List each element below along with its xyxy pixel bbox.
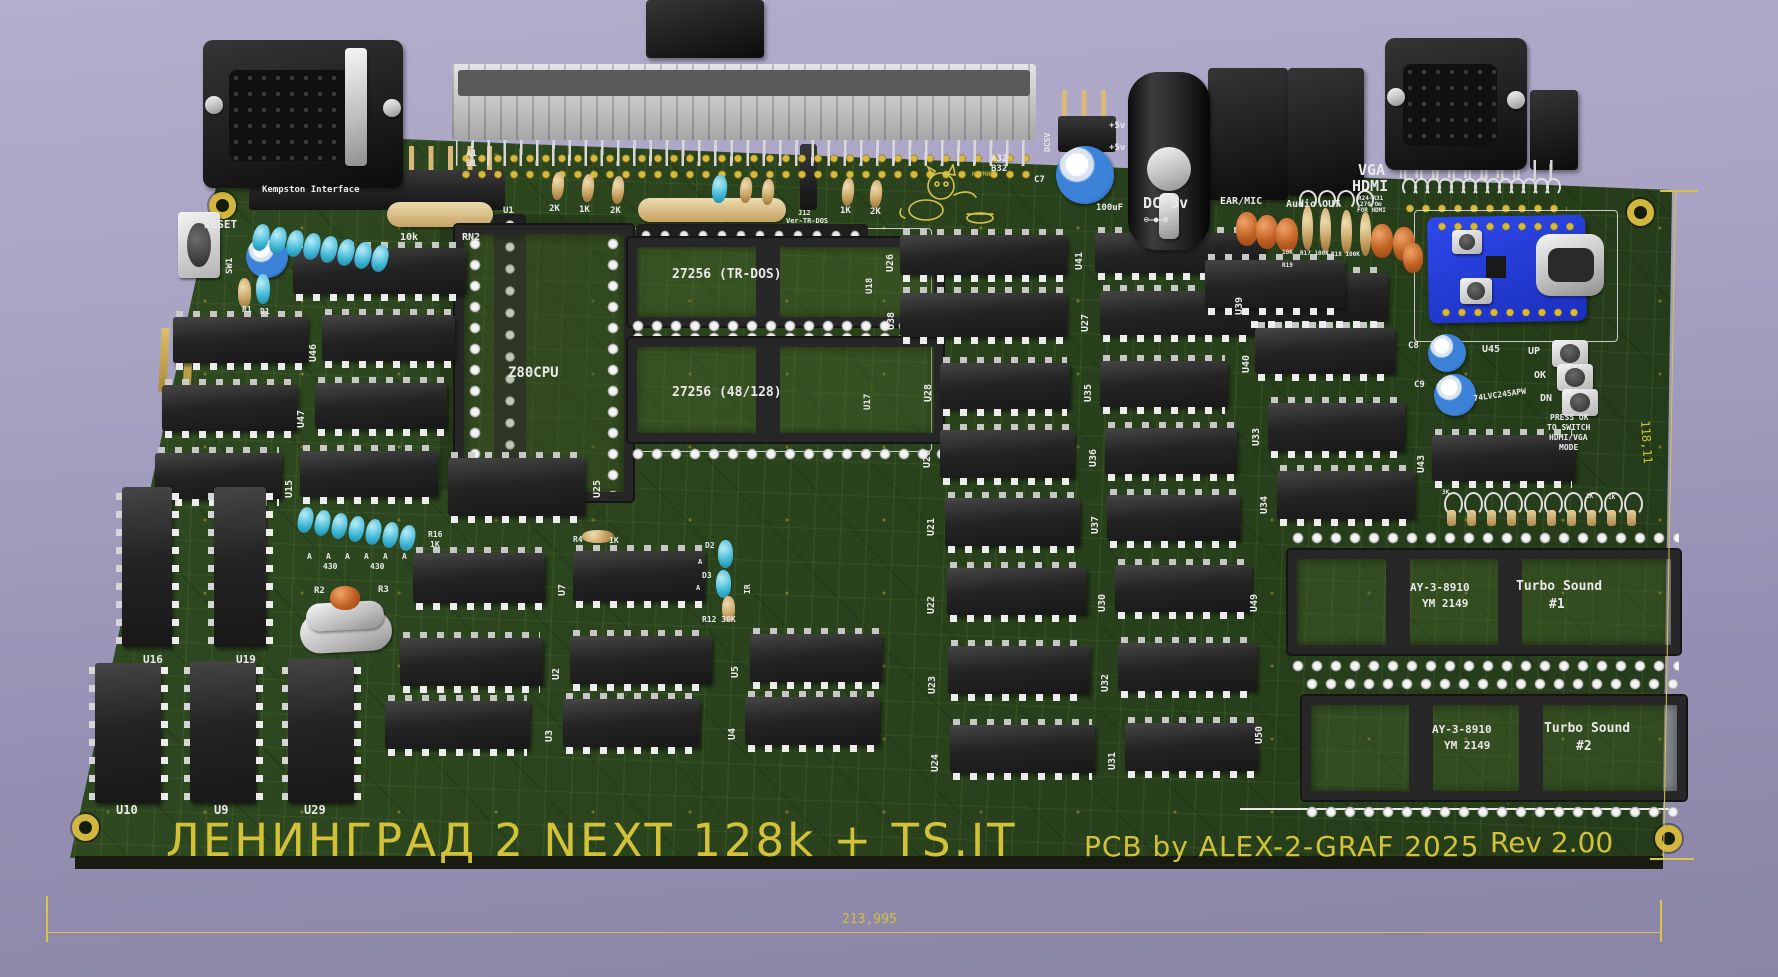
chip-pins (1118, 559, 1249, 565)
silk-label: U25 (593, 480, 603, 498)
ic-chip (900, 235, 1067, 275)
silk-label: UP (1528, 347, 1540, 357)
dim-part (1660, 900, 1662, 942)
silk-label: 2K (549, 205, 560, 214)
silk-label: R2 (314, 587, 325, 596)
chip-pins (1271, 397, 1402, 403)
dim-part (1660, 190, 1698, 192)
mounting-hole (1655, 825, 1682, 852)
bead-component (1371, 224, 1393, 258)
silk-label: D2 (705, 542, 715, 550)
ic-chip (900, 293, 1067, 337)
silk-label: AY-3-8910 (1410, 582, 1470, 593)
silk-label: R19 (1282, 263, 1293, 269)
silk-label: RN2 (462, 233, 480, 243)
silk-label: U50 (1255, 726, 1265, 744)
silk-label: +5v (1109, 144, 1125, 153)
ic-chip (315, 383, 447, 429)
silk-label: U26 (886, 254, 896, 272)
silk-label: 1K (1608, 495, 1615, 501)
chip-pins (303, 497, 435, 504)
silk-label: U34 (1260, 496, 1270, 514)
silk-label: +5v (1109, 122, 1125, 131)
chip-pins (176, 363, 305, 370)
silk-label: 1K (840, 207, 851, 216)
dc-barrel-jack (1128, 72, 1210, 250)
silk-label: YM 2149 (1444, 740, 1490, 751)
pcb-3d-render: Kempston InterfaceRESETSW1R1D110kRN2U1A1… (0, 0, 1778, 977)
dip-socket (1302, 696, 1686, 800)
chip-pins (1110, 489, 1237, 495)
board-credit-silkscreen: PCB by ALEX-2-GRAF 2025 (1084, 830, 1480, 863)
silk-label: IR (744, 584, 752, 594)
silk-label: 1K (1586, 494, 1593, 500)
ic-chip (1118, 643, 1257, 691)
chip-pins (318, 377, 444, 383)
ic-chip (448, 458, 585, 516)
usb-c-slot (1548, 248, 1594, 282)
silk-label: D3 (702, 572, 712, 580)
silk-label: 1K (430, 541, 440, 549)
ic-chip (948, 646, 1090, 694)
dsub-face (1403, 64, 1497, 146)
button-plunger (1570, 393, 1590, 411)
silk-label: U30 (1098, 594, 1108, 612)
chip-pins (165, 431, 295, 438)
chip-pins (943, 478, 1072, 485)
bead-component (1360, 212, 1371, 256)
ic-chip (570, 636, 712, 684)
chip-pins (388, 749, 527, 756)
chip-pins (89, 666, 95, 800)
silk-label: U38 (887, 312, 897, 330)
silk-label: A (326, 553, 331, 561)
dimension-line (46, 932, 1662, 933)
bead-component (256, 274, 270, 304)
silk-label: 1K (579, 206, 590, 215)
loop-body (1447, 510, 1456, 526)
silk-label: Kempston Interface (262, 186, 360, 195)
bead-component (330, 586, 360, 610)
chip-pins (1258, 322, 1392, 328)
silk-label: R12 30K (702, 616, 736, 624)
silk-label: AY-3-8910 (1432, 724, 1492, 735)
silk-label: A (696, 585, 700, 592)
ic-chip (1107, 495, 1240, 541)
dimension-height-label: 118,11 (1638, 420, 1655, 464)
button-plunger (1565, 368, 1585, 386)
bead-component (1302, 206, 1313, 250)
chip-pins (403, 686, 540, 693)
silk-label: U1 (503, 207, 514, 216)
bead-component (1320, 208, 1331, 252)
ic-chip (322, 315, 455, 361)
silk-label: КОРМИТЬ (972, 172, 997, 178)
chip-pins (296, 294, 463, 301)
chip-pins (318, 429, 444, 436)
wire-loop (1546, 178, 1561, 196)
loop-body (1507, 510, 1516, 526)
bead-component (1256, 215, 1278, 249)
silk-label: R17 100K (1300, 251, 1329, 257)
chip-pins (953, 773, 1092, 780)
silk-label: R3 (378, 586, 389, 595)
chip-pins (943, 357, 1067, 363)
chip-pins (1435, 481, 1572, 488)
dsub-bracket (345, 48, 367, 166)
silk-label: U15 (285, 480, 295, 498)
ic-chip (563, 699, 700, 747)
silk-label: U2 (552, 668, 562, 680)
silk-label: TO SWITCH (1547, 424, 1590, 432)
silk-label: U43 (1417, 455, 1427, 473)
mounting-hole (72, 814, 99, 841)
chip-pins (354, 662, 361, 800)
silk-label: RESET (204, 219, 237, 230)
loop-body (1627, 510, 1636, 526)
socket-pins-right (603, 234, 623, 492)
silk-label: U33 (1252, 428, 1262, 446)
chip-pins (903, 287, 1064, 293)
chip-pins (451, 516, 582, 523)
silk-label: U3 (545, 730, 555, 742)
ic-chip (1125, 723, 1258, 771)
socket-crossbar (1498, 550, 1522, 654)
silk-label: 10k (400, 233, 418, 243)
chip-pins (903, 275, 1064, 282)
chip-pins (416, 603, 542, 610)
chip-pins (903, 337, 1064, 344)
chip-pins (753, 628, 879, 634)
silk-label: U27 (1081, 314, 1091, 332)
dimension-width-label: 213,995 (842, 912, 897, 927)
silk-label: U47 (297, 410, 307, 428)
silk-label: 27256 (TR-DOS) (672, 268, 782, 281)
chip-pins (576, 601, 702, 608)
silk-label: Turbo Sound (1516, 580, 1602, 593)
chip-pins (451, 452, 582, 458)
tactile-button (1460, 278, 1492, 304)
silk-label: DC5V (1044, 133, 1052, 152)
ic-chip (750, 634, 882, 682)
silk-label: DC 5v (1143, 196, 1188, 211)
tactile-button (1557, 364, 1593, 391)
chip-pins (325, 309, 452, 315)
ic-chip (1100, 361, 1228, 407)
jack-part (646, 0, 764, 58)
chip-pins (266, 490, 273, 644)
chip-pins (1128, 717, 1255, 723)
chip-pins (748, 745, 877, 752)
chip-pins (948, 546, 1077, 553)
ic-chip (573, 551, 705, 601)
chip-pins (161, 666, 168, 800)
ic-chip (173, 317, 308, 363)
tactile-button (1452, 230, 1482, 254)
silk-label: U19 (236, 654, 256, 665)
bead-component (1403, 243, 1423, 273)
chip-pins (753, 682, 879, 689)
silk-label: HDMI (1352, 179, 1388, 194)
loop-body (1567, 510, 1576, 526)
silk-label: U28 (924, 384, 934, 402)
edge-connector-slot (458, 70, 1030, 96)
silk-label: YM 2149 (1422, 598, 1468, 609)
silk-label: C8 (1408, 342, 1419, 351)
chip-pins (1121, 637, 1254, 643)
silk-label: U31 (1108, 752, 1118, 770)
jack-part (1208, 68, 1288, 200)
chip-pins (1280, 465, 1412, 471)
ic-chip (950, 725, 1095, 773)
button-plunger (1459, 234, 1476, 250)
silk-label: U36 (1089, 449, 1099, 467)
dark-part (1486, 256, 1506, 278)
silk-label: A1 (466, 150, 477, 159)
chip-pins (1118, 612, 1249, 619)
silk-label: 2K (610, 207, 621, 216)
bead-component (1276, 218, 1298, 252)
silk-label: Ver-TR-DOS (786, 218, 828, 225)
chip-pins (948, 492, 1077, 498)
dim-part (46, 896, 48, 942)
silk-label: U5 (731, 666, 741, 678)
silk-label: PRESS OK (1550, 414, 1589, 422)
chip-pins (303, 445, 435, 451)
silk-label: U22 (927, 596, 937, 614)
silk-label: #1 (1549, 598, 1565, 611)
bead-component (238, 278, 251, 308)
chip-pins (1108, 422, 1234, 428)
silk-label: 1K (609, 537, 619, 545)
chip-pins (208, 490, 214, 644)
ic-chip (190, 661, 256, 803)
silk-label: A (364, 553, 369, 561)
silk-label: SW1 (226, 258, 235, 274)
silk-label: U17 (864, 394, 873, 410)
silk-label: U35 (1084, 384, 1094, 402)
chip-pins (1128, 771, 1255, 778)
button-plunger (1560, 344, 1580, 362)
chip-pins (943, 424, 1072, 430)
socket-crossbar (1409, 696, 1433, 800)
chip-pins (951, 640, 1087, 646)
dsub-face (229, 70, 361, 162)
tactile-button (1552, 340, 1588, 367)
silk-label: U4 (728, 728, 738, 740)
silk-label: #2 (1576, 740, 1592, 753)
dsub-screw (205, 96, 223, 114)
usb-c-connector (1536, 234, 1604, 296)
silk-label: D1 (260, 308, 270, 316)
electrolytic-capacitor (1056, 146, 1114, 204)
board-title-silkscreen: ЛЕНИНГРАД 2 NEXT 128k + TS.IT (166, 814, 1018, 867)
chip-pins (748, 691, 877, 697)
electrolytic-capacitor (1434, 374, 1476, 416)
silk-label: A32 (991, 155, 1007, 164)
ic-chip (1115, 565, 1252, 612)
socket-crossbar (756, 238, 780, 326)
loop-body (1467, 510, 1476, 526)
dsub-screw (1507, 91, 1525, 109)
bead-component (1341, 210, 1352, 254)
silk-label: HDMI/VGA (1549, 434, 1588, 442)
jack-part (1530, 90, 1578, 170)
silk-label: 2K (870, 208, 881, 217)
silk-label: U46 (309, 344, 319, 362)
chip-pins (282, 662, 288, 800)
chip-pins (943, 409, 1067, 416)
chip-pins (158, 447, 279, 453)
ic-chip (1268, 403, 1405, 451)
dip-socket (1288, 550, 1680, 654)
chip-pins (165, 379, 295, 385)
ic-chip (1255, 328, 1395, 374)
socket-pins-top (1303, 674, 1685, 694)
silk-label: C7 (1034, 176, 1045, 185)
silk-label: U41 (1075, 252, 1085, 270)
silk-label: U49 (1250, 594, 1260, 612)
chip-pins (1258, 374, 1392, 381)
silk-label: OK (1534, 371, 1546, 381)
tanfan-part (1062, 90, 1110, 118)
ic-chip (288, 659, 354, 803)
socket-pins-top (1289, 528, 1679, 548)
padrow-part (1438, 306, 1584, 319)
silk-label: 430 (370, 563, 384, 571)
button-plunger (1467, 282, 1485, 300)
silk-label: U21 (927, 518, 937, 536)
ic-chip (945, 498, 1080, 546)
chip-pins (1271, 451, 1402, 458)
silk-label: ⊖–●–⊕ (1144, 216, 1168, 224)
silk-label: R18 100K (1331, 252, 1360, 258)
silk-label: U10 (116, 804, 138, 816)
silk-label: U37 (1091, 516, 1101, 534)
bead-component (1236, 212, 1258, 246)
ic-chip (1277, 471, 1415, 519)
silk-label: Turbo Sound (1544, 722, 1630, 735)
chip-pins (950, 562, 1084, 568)
silk-label: J12 (798, 210, 811, 217)
silk-label: U40 (1242, 355, 1252, 373)
ic-chip (214, 487, 266, 647)
silk-label: B1 (466, 160, 477, 169)
loop-body (1607, 510, 1616, 526)
loop-body (1527, 510, 1536, 526)
silk-label: U32 (1101, 674, 1111, 692)
chip-pins (1103, 335, 1267, 342)
bead-component (718, 540, 733, 568)
chip-pins (1208, 308, 1342, 315)
chip-pins (388, 695, 527, 701)
silk-label: DN (1540, 394, 1552, 404)
silk-label: U16 (143, 654, 163, 665)
ic-chip (413, 553, 545, 603)
silk-label: U39 (1235, 297, 1245, 315)
silk-label: R1 (242, 306, 252, 314)
ic-chip (1105, 428, 1237, 474)
bead-component (716, 570, 731, 598)
silk-label: Z80CPU (508, 366, 559, 380)
dsub-screw (1387, 88, 1405, 106)
socket-crossbar (1519, 696, 1543, 800)
tan-part (387, 202, 493, 227)
silk-label: U23 (928, 676, 938, 694)
silk-label: A (402, 553, 407, 561)
dim-part (1650, 858, 1694, 860)
silk-label: MODE (1559, 444, 1578, 452)
vga-connector (1385, 38, 1527, 170)
chip-pins (1103, 355, 1225, 361)
chip-pins (573, 630, 709, 636)
socket-pins-bottom (1303, 802, 1685, 822)
barrel-pin-ring (1147, 147, 1191, 191)
silk-label: A (698, 559, 702, 566)
socket-pins-bottom (1289, 656, 1679, 676)
loop-body (1487, 510, 1496, 526)
chip-pins (1110, 541, 1237, 548)
edge-connector (452, 64, 1036, 140)
silk-label: R4 (573, 536, 583, 544)
chip-pins (576, 545, 702, 551)
chip-pins (172, 490, 179, 644)
silk-label: VGA (1358, 163, 1385, 178)
socket-pins-bottom (629, 444, 942, 464)
silk-label: Audio OUT (1286, 200, 1340, 210)
chip-pins (176, 311, 305, 317)
silk-label: C9 (1414, 381, 1425, 390)
chip-pins (953, 719, 1092, 725)
ic-chip (947, 568, 1087, 615)
silk-label: 27256 (48/128) (672, 386, 782, 399)
tactile-button (1562, 389, 1598, 416)
joystick-connector (203, 40, 403, 188)
socket-crossbar (1386, 550, 1410, 654)
silk-label: R16 (428, 531, 442, 539)
silk-label: U45 (1482, 345, 1500, 355)
chip-pins (1121, 691, 1254, 698)
ic-chip (162, 385, 298, 431)
silk-label: FOR HDMI (1357, 208, 1386, 214)
chip-pins (1103, 407, 1225, 414)
silk-label: A (307, 553, 312, 561)
chip-pins (325, 361, 452, 368)
silk-label: A (383, 553, 388, 561)
chip-pins (1108, 474, 1234, 481)
silk-label: U7 (558, 584, 568, 596)
silk-label: 3K (1442, 490, 1449, 496)
chip-pins (1280, 519, 1412, 526)
ic-chip (400, 638, 543, 686)
ic-chip (300, 451, 438, 497)
chip-pins (403, 632, 540, 638)
chip-pins (950, 615, 1084, 622)
loop-body (1587, 510, 1596, 526)
ic-chip (385, 701, 530, 749)
silk-label: U18 (866, 278, 875, 294)
chip-pins (256, 664, 263, 800)
ic-chip (745, 697, 880, 745)
ic-chip (122, 487, 172, 647)
silk-label: A (345, 553, 350, 561)
loop-body (1547, 510, 1556, 526)
chip-pins (116, 490, 122, 644)
ic-chip (1205, 260, 1345, 308)
silk-label: U24 (931, 754, 941, 772)
silk-label: 430 (323, 563, 337, 571)
dsub-screw (383, 99, 401, 117)
